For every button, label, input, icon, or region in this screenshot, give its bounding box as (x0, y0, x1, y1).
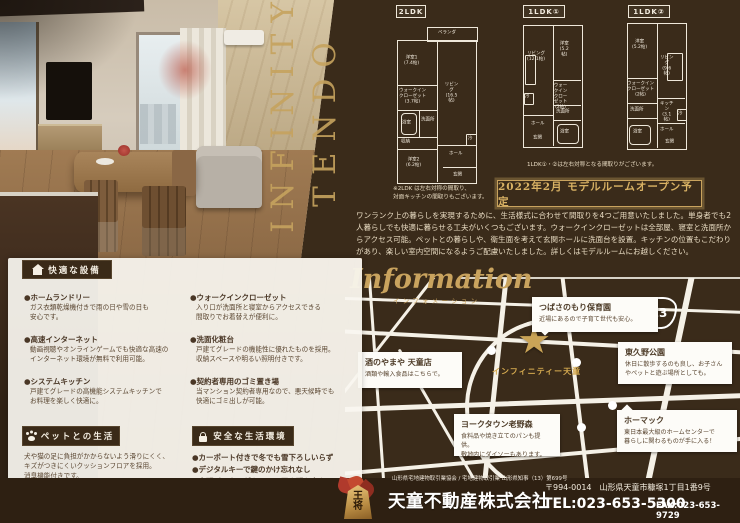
air-conditioner (224, 30, 264, 45)
brand-vertical-infinity: INFINITY (263, 0, 303, 252)
floorplan-1ldk-1: リビング (12.1帖) 洋室 (5.2帖) ウォークイン クローゼット (2帖… (523, 25, 583, 148)
room-label: ベランダ (438, 30, 456, 35)
room-label: ホール (449, 151, 463, 156)
feature-desc: 戸建てグレードの高機能システムキッチンで お料理を楽しく快適に。 (30, 387, 210, 406)
room-label: 玄関 (665, 139, 674, 144)
house-icon (33, 269, 42, 275)
intro-paragraph: ワンランク上の暮らしを実現するために、生活様式に合わせて間取りを4つご用意いたし… (356, 210, 731, 258)
room-label: ホール (660, 127, 674, 132)
room-label: リビング (12.1帖) (527, 51, 545, 62)
information-title: Information (350, 264, 533, 295)
lock-icon (199, 436, 207, 442)
poi-box-hoikuen: つばさのもり保育園 近場にあるので子育て世代も安心。 (532, 297, 658, 332)
safety-section-title: 安全な生活環境 (213, 430, 287, 442)
safety-section-header: 安全な生活環境 (192, 426, 294, 446)
sofa (196, 146, 262, 208)
feature-desc: 動画視聴やオンラインゲームでも快適な高速の インターネット環境が無料で利用可能。 (30, 345, 210, 364)
room-label: 冷 (468, 136, 473, 141)
floorplan-1ldk-2: 洋室 (5.2帖) リビング (9.6帖) ウォークイン クローゼット (2帖)… (627, 23, 687, 150)
poi-name: ヨークタウン老野森 (461, 419, 553, 430)
poi-desc: 東日本最大級のホームセンターで 暮らしに関わるものが手に入る！ (624, 428, 729, 446)
room-label: 洋室1 (7.4帖) (404, 55, 419, 66)
feature-title: ●ウォークインクローゼット (190, 292, 287, 303)
pet-desc: 犬や猫の足に負担がかからないよう滑りにくく、 キズがつきにくいクッションフロアを… (24, 452, 204, 481)
flyer-page: INFINITY TENDO 2LDK 1LDK① 1LDK② ベランダ 洋室1… (0, 0, 740, 523)
room-label: 収納 (401, 139, 410, 144)
poi-desc: 休日に散歩するのも良し、お子さん やペットと遊ぶ場所としても。 (625, 360, 724, 378)
area-map: ★ インフィニティー天童 13 つばさのもり保育園 近場にあるので子育て世代も安… (345, 278, 740, 480)
feature-title: ●システムキッチン (24, 376, 90, 387)
company-name: 天童不動産株式会社 (388, 488, 550, 513)
pet-section-title: ペットとの生活 (41, 430, 114, 442)
tv-sideboard (38, 124, 102, 152)
map-poi-dot (487, 346, 496, 355)
room-label: 洋室2 (6.2帖) (406, 157, 421, 168)
map-poi-dot (608, 401, 617, 410)
corner-shadow (0, 0, 140, 100)
feature-title: ●ホームランドリー (24, 292, 90, 303)
room-label: ホール (531, 121, 545, 126)
room-label: 冷 (525, 94, 530, 99)
room-label: 玄関 (453, 172, 462, 177)
plan-note-1ldk: 1LDK①・②は左右対称となる間取りがございます。 (527, 161, 701, 169)
room-label: 玄関 (533, 135, 542, 140)
information-subtitle: インフォメーション (393, 295, 523, 305)
room-label: 洋室 (5.2帖) (558, 41, 571, 57)
room-label: ウォークイン クローゼット (3.7帖) (399, 88, 426, 104)
feature-title: ●契約者専用のゴミ置き場 (190, 376, 279, 387)
room-label: ウォークイン クローゼット (2帖) (553, 83, 568, 110)
floorplan-2ldk: ベランダ 洋室1 (7.4帖) リビング (16.5帖) ウォークイン クローゼ… (397, 27, 477, 183)
poi-desc: 近場にあるので子育て世代も安心。 (539, 315, 649, 324)
company-logo: 王 将 (336, 476, 382, 522)
plan-title-2ldk: 2LDK (396, 5, 426, 18)
feature-desc: 当マンション契約者専用なので、悪天候時でも 快適にゴミ出しが可能。 (196, 387, 376, 406)
company-address: 〒994-0014 山形県天童市糠塚1丁目1番9号 (545, 482, 711, 493)
city-view (140, 104, 176, 144)
room-label: リビング (9.6帖) (660, 55, 674, 77)
poi-name: 酒のやまや 天童店 (365, 357, 455, 368)
poi-box-yorktown: ヨークタウン老野森 食料品や焼き立てのパンも提供。 敷地内にダイソーもあります。 (454, 414, 560, 456)
room-label: 浴室 (633, 129, 642, 134)
table-dish (96, 158, 114, 165)
safety-item: ●デジタルキーで鍵のかけ忘れなし (192, 464, 310, 475)
poi-box-homac: ホーマック 東日本最大級のホームセンターで 暮らしに関わるものが手に入る！ (617, 410, 737, 452)
room-label: リビング (16.5帖) (443, 82, 460, 104)
room-label: 浴室 (560, 129, 569, 134)
poi-desc: 食料品や焼き立てのパンも提供。 敷地内にダイソーもあります。 (461, 432, 552, 459)
poi-name: 東久野公園 (625, 347, 725, 358)
plan-note-2ldk: ※2LDK は左右対称の間取り、 対面キッチンの間取りもございます。 (393, 185, 511, 201)
feature-desc: ガス衣類乾燥機付きで雨の日や雪の日も 安心です。 (30, 303, 210, 322)
comfort-section-title: 快適な設備 (48, 264, 101, 276)
poi-box-park: 東久野公園 休日に散歩するのも良し、お子さん やペットと遊ぶ場所としても。 (618, 342, 732, 384)
map-poi-dot (577, 423, 586, 432)
feature-desc: 入り口が洗面所と寝室からアクセスできる 間取りでお着替えが便利に。 (196, 303, 376, 322)
license-text: 山形県宅地建物取引業協会 / 宅地建物取引業 山形県知事（13）第699号 (392, 474, 680, 482)
plan-title-1ldk1: 1LDK① (523, 5, 565, 18)
poi-name: ホーマック (624, 415, 730, 426)
paw-icon (28, 436, 35, 441)
room-label: 洋室 (5.2帖) (632, 39, 647, 50)
room-label: ウォークイン クローゼット (2帖) (627, 81, 654, 97)
shogi-piece-text: 王 将 (353, 492, 363, 513)
foreground-chair-right (142, 186, 186, 256)
comfort-section-header: 快適な設備 (22, 260, 112, 279)
room-label: 浴室 (402, 120, 411, 125)
red-foliage (158, 40, 212, 100)
room-label: 冷 (678, 111, 683, 116)
feature-desc: 戸建てグレードの機能性に優れたものを採用。 収納スペースや明るい照明付きです。 (196, 345, 376, 364)
model-room-open-banner: 2022年2月 モデルルームオープン予定 (497, 180, 702, 207)
feature-title: ●洗面化粧台 (190, 334, 234, 345)
brand-vertical-tendo: TENDO (305, 19, 345, 219)
plan-title-1ldk2: 1LDK② (628, 5, 670, 18)
room-label: キッチン (3.1帖) (660, 101, 674, 123)
property-map-label: インフィニティー天童 (492, 366, 581, 377)
room-label: 洗面所 (556, 109, 570, 114)
flower-centerpiece (118, 145, 130, 156)
feature-title: ●高速インターネット (24, 334, 98, 345)
room-label: 洗面所 (630, 107, 644, 112)
pet-section-header: ペットとの生活 (22, 426, 120, 446)
room-label: 洗面所 (421, 117, 435, 122)
safety-item: ●カーポート付きで冬でも雪下ろしいらず (192, 452, 333, 463)
company-fax: FAX:023-653-9729 (656, 501, 740, 521)
poi-desc: 酒類や輸入食品はこちらで。 (365, 370, 454, 379)
poi-name: つばさのもり保育園 (539, 302, 651, 313)
